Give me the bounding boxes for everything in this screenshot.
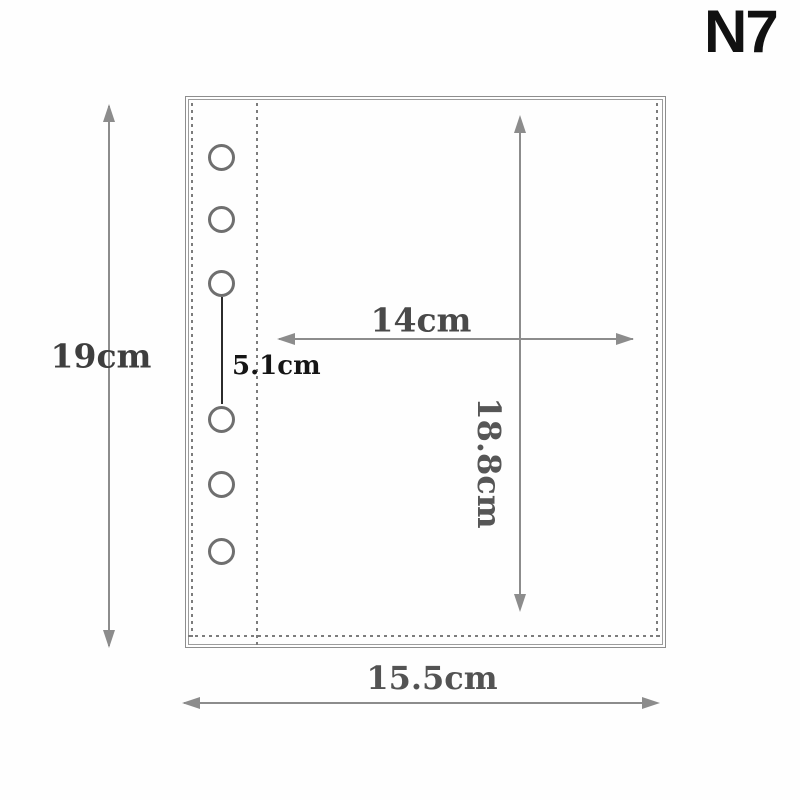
arrow-head-up-icon — [103, 104, 115, 122]
binder-hole-6 — [208, 538, 235, 565]
arrow-line — [519, 118, 521, 596]
arrow-head-right-icon — [616, 333, 634, 345]
arrow-head-down-icon — [514, 594, 526, 612]
inner-height-label: 18.8cm — [473, 397, 505, 528]
inner-width-label: 14cm — [371, 304, 472, 337]
product-dimension-diagram: N7 5.1cm 19cm 14cm 18.8cm — [0, 0, 800, 800]
arrow-head-down-icon — [103, 630, 115, 648]
binder-hole-4 — [208, 406, 235, 433]
arrow-head-left-icon — [277, 333, 295, 345]
stitch-line-right — [656, 103, 658, 637]
hole-gap-label: 5.1cm — [232, 353, 321, 379]
arrow-head-up-icon — [514, 115, 526, 133]
binder-hole-3 — [208, 270, 235, 297]
binder-hole-5 — [208, 471, 235, 498]
binder-hole-1 — [208, 144, 235, 171]
outer-width-label: 15.5cm — [366, 662, 497, 694]
arrow-line — [184, 702, 644, 704]
arrow-line — [108, 106, 110, 646]
binder-hole-2 — [208, 206, 235, 233]
arrow-head-right-icon — [642, 697, 660, 709]
hole-gap-line — [221, 297, 223, 404]
arrow-head-left-icon — [182, 697, 200, 709]
stitch-line-left — [191, 103, 193, 637]
outer-height-label: 19cm — [51, 340, 152, 373]
model-label: N7 — [704, 2, 777, 62]
stitch-line-bottom — [188, 635, 663, 637]
